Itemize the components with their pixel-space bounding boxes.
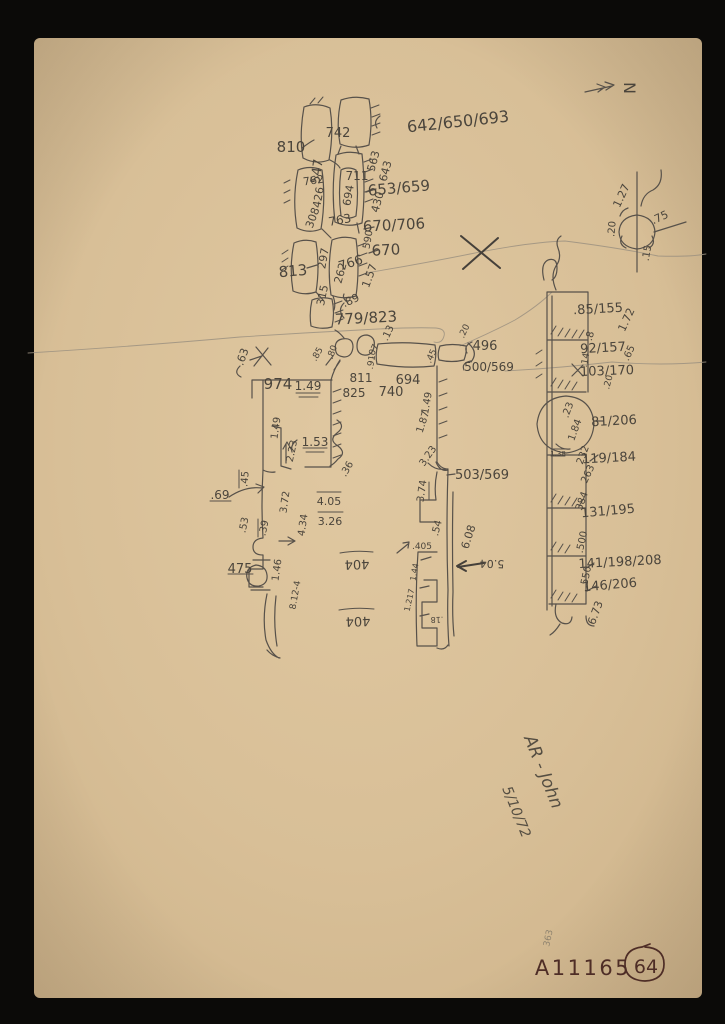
north-label: N <box>620 82 639 94</box>
annotation: 811 <box>350 371 373 385</box>
sketch-plan-svg: N 810 <box>0 0 725 1024</box>
annotation: 500/569 <box>464 360 514 374</box>
annotation: .20 <box>606 221 618 238</box>
annotation: 813 <box>278 261 308 281</box>
annotation: .85/155 <box>573 301 624 319</box>
annotation: 1.53 <box>302 435 329 449</box>
annotation: 404 <box>344 556 369 572</box>
annotation: .405 <box>412 542 432 552</box>
annotation: 1.49 <box>295 379 322 393</box>
circled-page-number: 64 <box>634 956 658 978</box>
annotation: 81/206 <box>591 413 637 430</box>
annotation: 825 <box>343 386 366 400</box>
annotation: 496 <box>473 339 498 354</box>
catalog-number: A11165 <box>535 956 631 980</box>
annotation: 3.26 <box>318 515 343 528</box>
annotation: .69 <box>210 488 229 502</box>
annotation: .18 <box>430 615 443 624</box>
annotation: 742 <box>326 126 351 141</box>
annotation: 711 <box>346 169 369 183</box>
scanned-sketch-page: N 810 <box>0 0 725 1024</box>
annotation: 475 <box>228 562 253 577</box>
annotation: 404 <box>345 613 370 629</box>
annotation: 810 <box>277 138 306 156</box>
annotation: 5.04 <box>480 557 505 571</box>
annotation: 1.38 <box>550 450 566 458</box>
annotation: 4.05 <box>317 495 342 508</box>
annotation: .45 <box>239 471 251 488</box>
annotation: 670 <box>371 240 401 259</box>
annotation: 974 <box>264 375 293 393</box>
annotation: 503/569 <box>455 468 509 483</box>
annotation: 694 <box>396 373 421 388</box>
